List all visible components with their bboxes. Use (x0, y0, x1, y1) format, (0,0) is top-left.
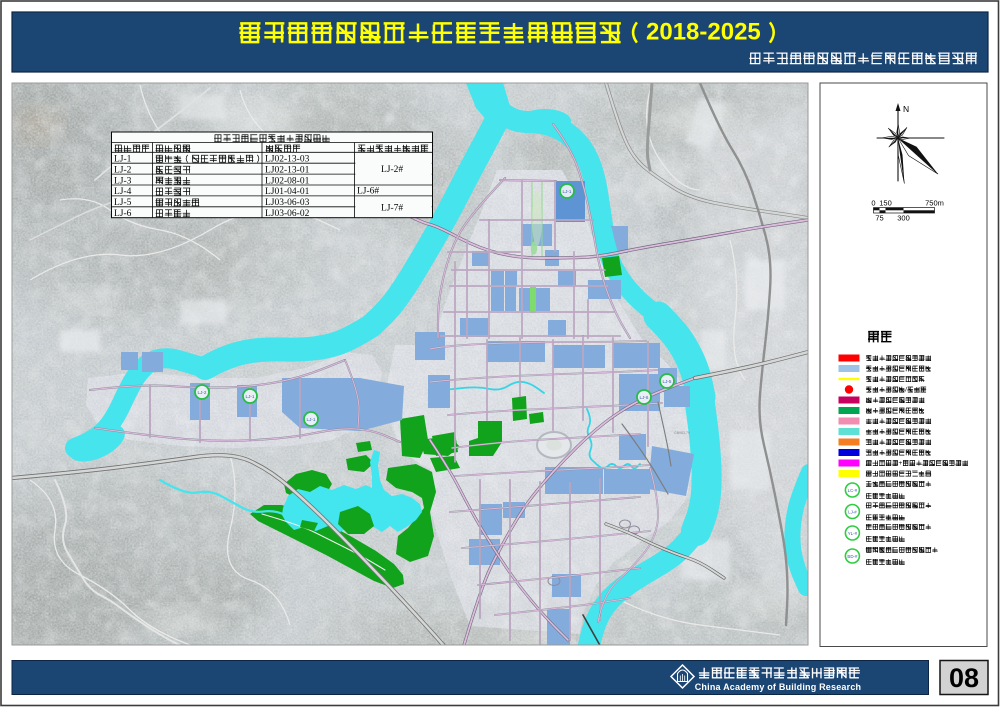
svg-text:N: N (903, 104, 909, 114)
svg-text:08: 08 (949, 663, 979, 693)
svg-text:300: 300 (897, 214, 910, 223)
svg-text:2018-2025: 2018-2025 (646, 19, 761, 46)
svg-text:BD-#: BD-# (847, 554, 858, 559)
svg-text:LJ-#: LJ-# (848, 510, 857, 515)
svg-text:YL-#: YL-# (848, 531, 858, 536)
svg-text:750m: 750m (925, 199, 944, 208)
svg-text:LC-#: LC-# (848, 488, 858, 493)
svg-text:China Academy of Building Rese: China Academy of Building Research (695, 682, 862, 692)
svg-text:150: 150 (879, 199, 892, 208)
svg-text:75: 75 (875, 214, 883, 223)
svg-text:+: + (899, 460, 903, 467)
svg-text:/: / (905, 387, 907, 394)
svg-text:0: 0 (871, 199, 875, 208)
